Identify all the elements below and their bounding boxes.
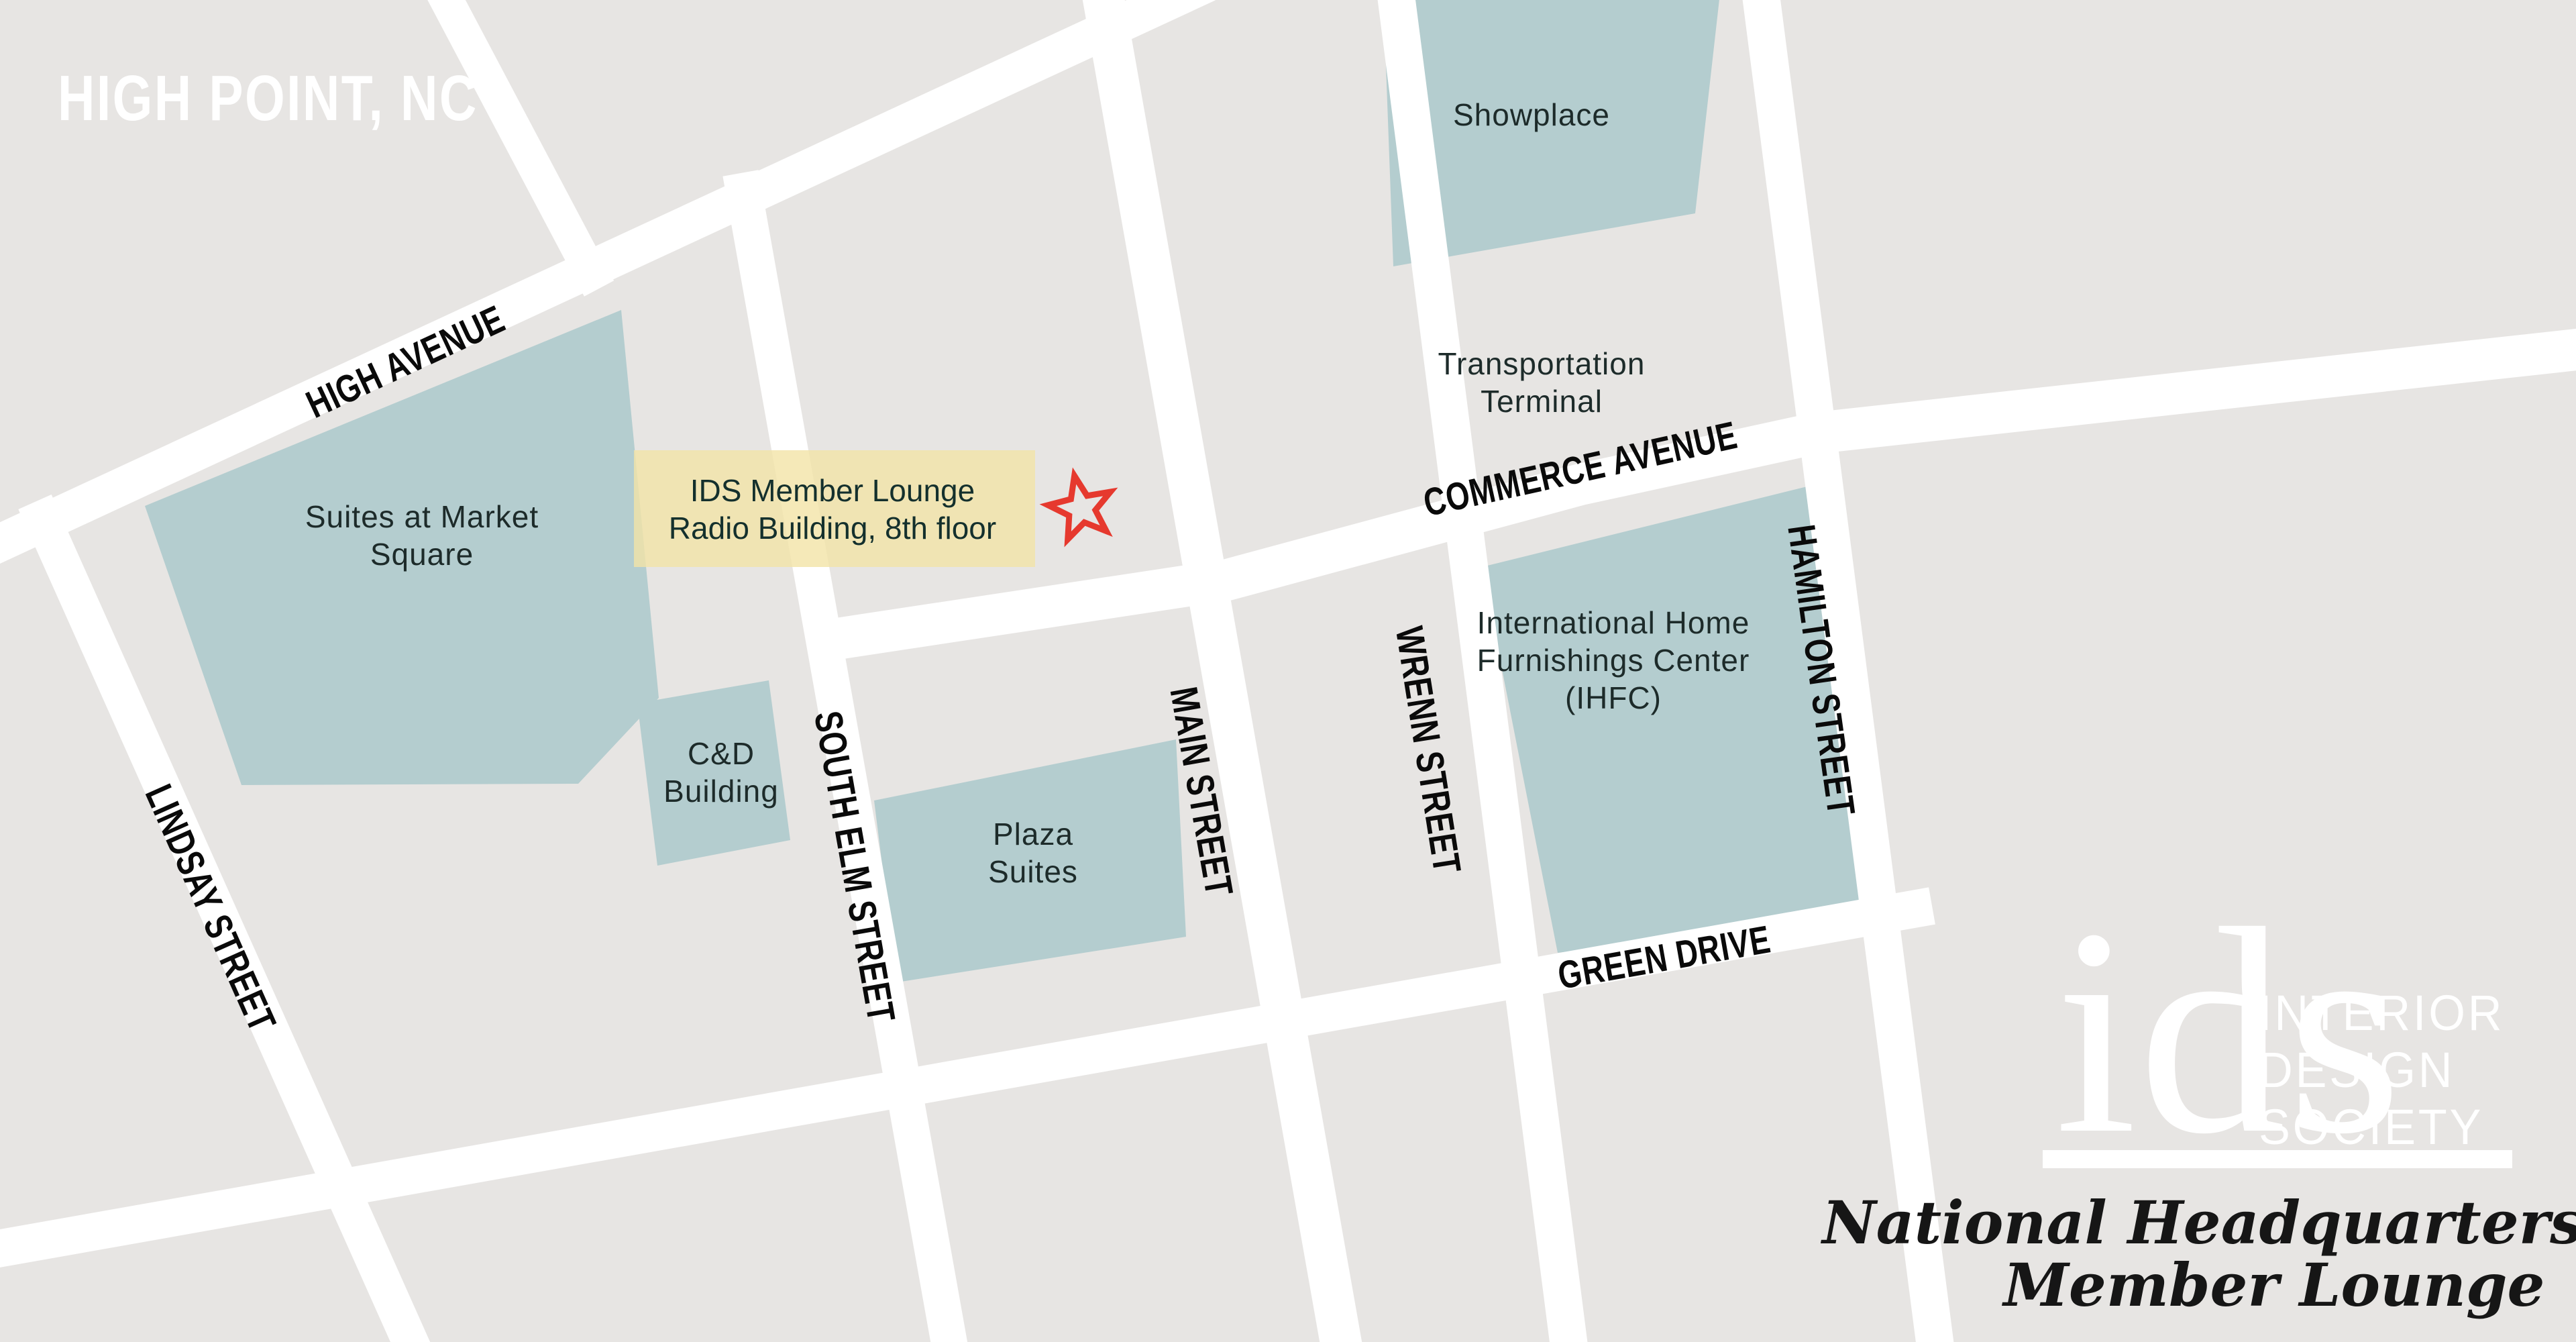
building-label-showplace: Showplace (1453, 96, 1610, 134)
suites-label-line1: Suites at Market (305, 498, 539, 535)
cd-label-line2: Building (663, 772, 779, 810)
suites-label-line2: Square (305, 535, 539, 573)
logo-org-line-design: DESIGN (2259, 1041, 2455, 1098)
terminal-label-line2: Terminal (1438, 382, 1646, 420)
logo-divider-bar (2043, 1150, 2512, 1168)
plaza-label-line2: Suites (988, 853, 1078, 890)
map-canvas: HIGH POINT, NC HIGH AVENUE LINDSAY STREE… (0, 0, 2576, 1342)
marker-label-line2: Radio Building, 8th floor (669, 509, 996, 547)
building-label-showplace-line: Showplace (1453, 96, 1610, 134)
page-title: HIGH POINT, NC (58, 62, 478, 136)
terminal-label-line1: Transportation (1438, 345, 1646, 382)
ihfc-label-line2: Furnishings Center (1477, 641, 1750, 679)
building-label-cd-building: C&D Building (663, 735, 779, 810)
logo-tagline-line2: Member Lounge (2003, 1250, 2544, 1320)
building-label-ihfc: International Home Furnishings Center (I… (1477, 604, 1750, 717)
logo-tagline-line1: National Headquarters and (1822, 1188, 2576, 1257)
cd-label-line1: C&D (663, 735, 779, 772)
street-top-left-side (439, 0, 599, 289)
marker-label-ids-member-lounge: IDS Member Lounge Radio Building, 8th fl… (669, 472, 996, 547)
marker-label-line1: IDS Member Lounge (669, 472, 996, 509)
star-outline-icon (1048, 476, 1110, 539)
ihfc-label-line1: International Home (1477, 604, 1750, 641)
plaza-label-line1: Plaza (988, 815, 1078, 853)
block-label-transportation-terminal: Transportation Terminal (1438, 345, 1646, 420)
logo-org-line-interior: INTERIOR (2259, 984, 2504, 1041)
ihfc-label-line3: (IHFC) (1477, 679, 1750, 717)
logo-org-line-society: SOCIETY (2259, 1098, 2483, 1155)
building-label-suites-at-market-square: Suites at Market Square (305, 498, 539, 573)
street-main (1100, 0, 1344, 1342)
building-label-plaza-suites: Plaza Suites (988, 815, 1078, 890)
